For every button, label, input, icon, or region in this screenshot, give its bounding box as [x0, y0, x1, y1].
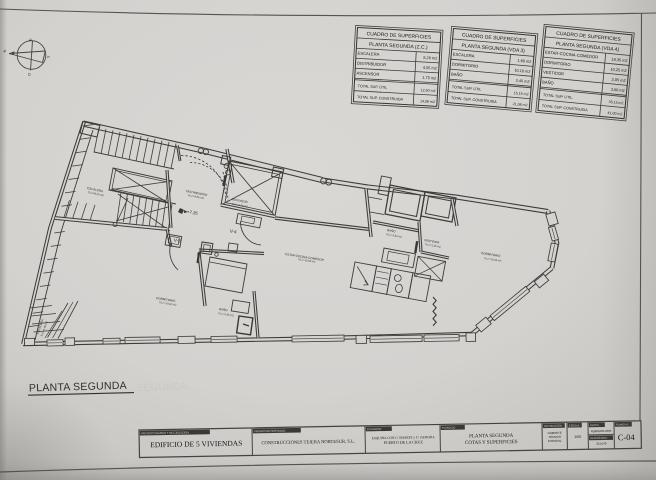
svg-text:V-3: V-3: [173, 238, 181, 244]
svg-text:1/50: 1/50: [574, 435, 581, 439]
svg-text:14,08 m2: 14,08 m2: [420, 99, 435, 104]
svg-text:V-4: V-4: [229, 229, 237, 235]
svg-text:EDIFICIO DE 5 VIVIENDAS: EDIFICIO DE 5 VIVIENDAS: [150, 439, 242, 450]
svg-text:4,55 m2: 4,55 m2: [423, 65, 437, 71]
svg-text:C-04: C-04: [618, 433, 636, 442]
svg-text:FEBRERO-2004: FEBRERO-2004: [591, 429, 612, 433]
svg-text:ESCALA:: ESCALA:: [569, 423, 580, 427]
svg-text:PROMOTOR/PROPIEDAD:: PROMOTOR/PROPIEDAD:: [254, 429, 286, 434]
svg-text:COTAS Y SUPERFICIES: COTAS Y SUPERFICIES: [465, 440, 518, 446]
svg-text:12,50 m2: 12,50 m2: [421, 88, 436, 93]
svg-text:8,20 m2: 8,20 m2: [423, 55, 437, 61]
svg-text:SEGUNDA: SEGUNDA: [137, 382, 188, 394]
svg-text:PUERTO DE LA CRUZ: PUERTO DE LA CRUZ: [384, 439, 424, 445]
svg-text:PLANO Nº:: PLANO Nº:: [616, 422, 629, 426]
svg-text:N: N: [3, 49, 7, 52]
svg-text:REFERENCIA:: REFERENCIA:: [590, 436, 608, 440]
svg-text:PLANTA SEGUNDA: PLANTA SEGUNDA: [469, 434, 514, 440]
svg-text:321/143: 321/143: [596, 441, 607, 445]
svg-text:O: O: [28, 73, 32, 76]
svg-text:BAÑO: BAÑO: [451, 71, 463, 77]
svg-text:INTEGRAL: INTEGRAL: [548, 439, 563, 443]
svg-text:1,75 m2: 1,75 m2: [422, 75, 436, 81]
svg-text:FECHA:: FECHA:: [590, 423, 600, 427]
svg-text:PLANO DE:: PLANO DE:: [442, 425, 456, 429]
